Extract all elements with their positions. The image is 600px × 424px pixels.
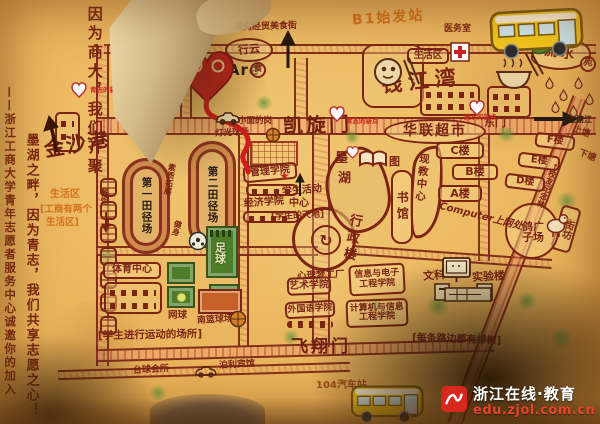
pigeon-square-label-2: 广场: [532, 221, 543, 242]
bottom-silhouette: [150, 394, 265, 424]
sports-center-box: 体育中心: [103, 262, 161, 279]
basketball-south-label: 南篮球场: [197, 315, 233, 326]
building-e-label: E楼: [530, 155, 548, 167]
dorm-box: [100, 224, 117, 243]
qiantang-river-label: 钱塘江: [568, 116, 592, 124]
location-heart-icon: [72, 83, 86, 97]
roundabout-glyph: ↻: [319, 231, 332, 250]
roundabout-arrow-icon: ↻: [311, 225, 341, 255]
library-label: 书馆: [396, 191, 409, 223]
student-center-star-icon: ★: [279, 170, 290, 183]
mohu-label-hu: 湖: [338, 172, 351, 186]
building-a-label: A楼: [450, 188, 470, 200]
billiards-club-label: 台球会所: [133, 365, 169, 376]
student-center-label-2: 中心: [289, 199, 309, 210]
cs-school-box: 计算机与信息 工程学院: [346, 298, 409, 328]
building-c-box: C楼: [436, 142, 484, 159]
foreign-language-school-label: 外国语学院: [287, 304, 332, 316]
zjol-logo-icon: [441, 386, 467, 412]
mohu-label-mo: 墨: [335, 152, 348, 166]
tennis-label: 网球: [168, 311, 187, 321]
window-row: [493, 94, 525, 100]
cs-school-label-2: 工程学院: [359, 312, 395, 323]
window-row: [426, 104, 474, 110]
xiatang-label: 下塘: [577, 149, 597, 164]
tennis-court-2: [167, 286, 195, 308]
hand-drawn-campus-map: 因为商大，我们齐聚 墨湖之畔，因为青志，我们共享志愿之心！ ——浙江工商大学青年…: [0, 0, 600, 424]
tree: [550, 328, 574, 348]
building-b-label: B楼: [465, 166, 484, 178]
slogan-line-1: 因为商大，我们齐聚: [86, 6, 102, 177]
lab-building-label-2: 实验楼: [472, 270, 506, 283]
library-box: 书馆: [391, 170, 413, 244]
canteen-direction-label: 餐馆: [99, 188, 108, 205]
watermark-brand: 浙江在线·教育: [473, 386, 595, 403]
building-d-box: D楼: [504, 173, 546, 193]
quality-path-label-2: 健身: [170, 219, 182, 237]
building-d-label: D楼: [515, 176, 534, 189]
window-row: [493, 106, 525, 112]
liushui-label: 流水: [543, 45, 579, 63]
tree: [426, 296, 450, 316]
info-engineering-label-2: 工程学院: [359, 279, 395, 290]
clinic-label: 医务室: [444, 25, 471, 34]
building-c-label: C楼: [450, 145, 469, 157]
site-watermark: 浙江在线·教育 edu.zjol.com.cn: [441, 386, 595, 418]
living-area-note-2: 生活区]: [46, 218, 79, 228]
slogan-line-2: 墨湖之畔，因为青志，我们共享志愿之心！: [24, 133, 38, 418]
hualian-supermarket-label: 华联超市: [403, 124, 467, 139]
window-row: [110, 303, 156, 309]
living-area-right-box: 生活区: [407, 48, 449, 64]
kaixuanmen-gate-label: 凯旋门: [283, 114, 353, 137]
info-engineering-box: 信息与电子 工程学院: [348, 263, 406, 297]
foodstreet-stub-road: [294, 58, 308, 119]
living-area-note-1: [工商有两个: [40, 205, 92, 215]
jiefang-label: 街坊: [558, 218, 574, 240]
foreign-language-school-box: 外国语学院: [285, 300, 336, 320]
tennis-court-1: [167, 262, 195, 284]
living-area-left-label: 生活区: [50, 190, 80, 201]
stand-marks: [210, 230, 234, 237]
window-row: [110, 290, 156, 296]
building-b-box: B楼: [452, 164, 498, 180]
spot-caption-3: 流水的新点: [464, 114, 497, 121]
living-area-right-label: 生活区: [414, 51, 443, 61]
window-row: [426, 92, 474, 98]
hotel-label: 泊利宾馆: [219, 360, 255, 371]
sports-area-note: [学生进行运动的场所]: [98, 329, 202, 342]
building-f-label: F楼: [546, 135, 564, 147]
basketball-court-south: [198, 289, 242, 314]
art-school-box: 艺术学院: [287, 276, 332, 296]
tree: [148, 386, 168, 400]
liushui-yuan-circle: 苑: [580, 56, 596, 72]
bus-icon-bottom: [352, 387, 423, 423]
hualian-supermarket-bubble: 华联超市: [384, 119, 486, 144]
b1-station-label: B1始发站: [352, 8, 425, 28]
sports-center-building: [104, 282, 162, 314]
tree: [516, 292, 538, 310]
sports-center-label: 体育中心: [112, 265, 152, 276]
library-tu-label: 图: [389, 156, 400, 168]
spot-caption-2: 青志的新点: [346, 118, 379, 125]
economics-school-label: 经济学院: [244, 197, 285, 210]
slogan-line-3: ——浙江工商大学青年志愿者服务中心诚邀你的加入: [4, 86, 16, 397]
pigeon-square-circle: 鸽子 广场: [505, 203, 559, 259]
building-a-box: A楼: [438, 185, 482, 202]
window-row: [61, 121, 74, 127]
soccer-label: 足球: [214, 242, 226, 264]
feixiangmen-gate-label: 飞翔门: [291, 339, 351, 357]
foreign-language-dots: [287, 321, 333, 328]
bus-station-label: 104汽车站: [316, 381, 367, 392]
track-field-1-label: 第一田径场: [140, 177, 151, 235]
art-school-label: 艺术学院: [289, 280, 329, 292]
lab-building-label-1: 文科: [423, 269, 446, 282]
liushui-yuan-label: 苑: [583, 59, 592, 68]
watermark-url: edu.zjol.com.cn: [473, 403, 595, 418]
